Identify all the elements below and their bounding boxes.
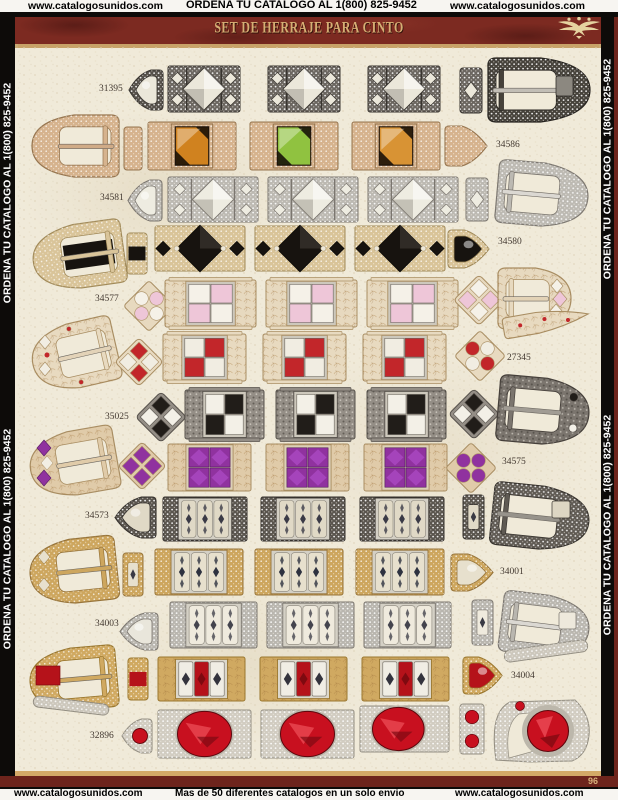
svg-text:34573: 34573 bbox=[85, 511, 109, 521]
svg-text:34001: 34001 bbox=[500, 567, 524, 577]
svg-text:34580: 34580 bbox=[498, 237, 522, 247]
svg-text:34581: 34581 bbox=[100, 193, 124, 203]
svg-text:34575: 34575 bbox=[502, 457, 526, 467]
svg-text:34004: 34004 bbox=[511, 671, 535, 681]
svg-text:31395: 31395 bbox=[99, 84, 123, 94]
svg-text:34003: 34003 bbox=[95, 619, 119, 629]
svg-text:27345: 27345 bbox=[507, 353, 531, 363]
svg-text:35025: 35025 bbox=[105, 412, 129, 422]
svg-text:34586: 34586 bbox=[496, 140, 520, 150]
svg-text:32896: 32896 bbox=[90, 731, 114, 741]
svg-text:34577: 34577 bbox=[95, 294, 119, 304]
